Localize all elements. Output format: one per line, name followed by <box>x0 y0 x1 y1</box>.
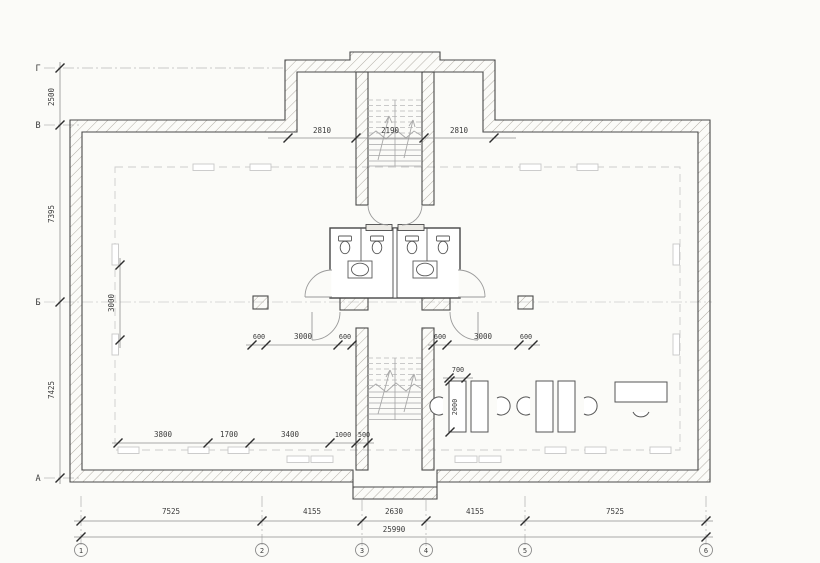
dim-bot-inner-3: 3400 <box>281 430 300 439</box>
column <box>253 296 268 309</box>
dim-span-1: 7525 <box>162 507 180 516</box>
dim-midl-1: 600 <box>253 333 265 341</box>
axis-col-1: 1 <box>79 547 83 555</box>
column <box>518 296 533 309</box>
desk <box>536 381 553 432</box>
dim-left-1: 2500 <box>47 87 56 106</box>
dim-left-2: 7395 <box>47 205 56 223</box>
dim-left-3: 7425 <box>47 381 56 399</box>
desk <box>558 381 575 432</box>
floor-plan-drawing: 2500 7395 7425 2810 2190 2810 600 3000 6… <box>0 0 820 563</box>
axis-row-b: Б <box>35 298 40 308</box>
chair <box>497 397 510 415</box>
dim-bot-inner-5: 500 <box>358 431 370 439</box>
chair <box>430 397 443 415</box>
sink <box>413 261 437 278</box>
dim-span-4: 4155 <box>466 507 484 516</box>
dim-midr-3: 600 <box>520 333 532 341</box>
dim-span-5: 7525 <box>606 507 624 516</box>
dim-total: 25990 <box>383 525 406 534</box>
axis-row-g: Г <box>35 64 40 74</box>
dim-top-3: 2810 <box>450 126 469 135</box>
chair <box>584 397 597 415</box>
dim-desk-depth: 2000 <box>451 399 459 415</box>
sink <box>348 261 372 278</box>
axis-row-v: В <box>35 121 40 131</box>
dim-top-2: 2190 <box>381 126 400 135</box>
chair <box>517 397 530 415</box>
dim-midl-3: 600 <box>339 333 351 341</box>
dim-span-2: 4155 <box>303 507 321 516</box>
dim-room-vertical: 3000 <box>107 293 116 312</box>
desk <box>471 381 488 432</box>
dim-midr-2: 3000 <box>474 332 493 341</box>
dim-bot-inner-1: 3800 <box>154 430 173 439</box>
axis-col-6: 6 <box>704 547 708 555</box>
axis-col-5: 5 <box>523 547 527 555</box>
dim-bot-inner-4: 1000 <box>335 431 351 439</box>
axis-col-4: 4 <box>424 547 428 555</box>
desk <box>615 382 667 402</box>
dim-midl-2: 3000 <box>294 332 313 341</box>
axis-col-3: 3 <box>360 547 364 555</box>
axis-col-2: 2 <box>260 547 264 555</box>
dim-top-1: 2810 <box>313 126 332 135</box>
dim-desk-width: 700 <box>452 366 464 374</box>
dim-span-3: 2630 <box>385 507 404 516</box>
dim-bot-inner-2: 1700 <box>220 430 239 439</box>
dim-midr-1: 600 <box>434 333 446 341</box>
wc-block <box>330 225 460 299</box>
axis-row-a: А <box>35 474 40 484</box>
